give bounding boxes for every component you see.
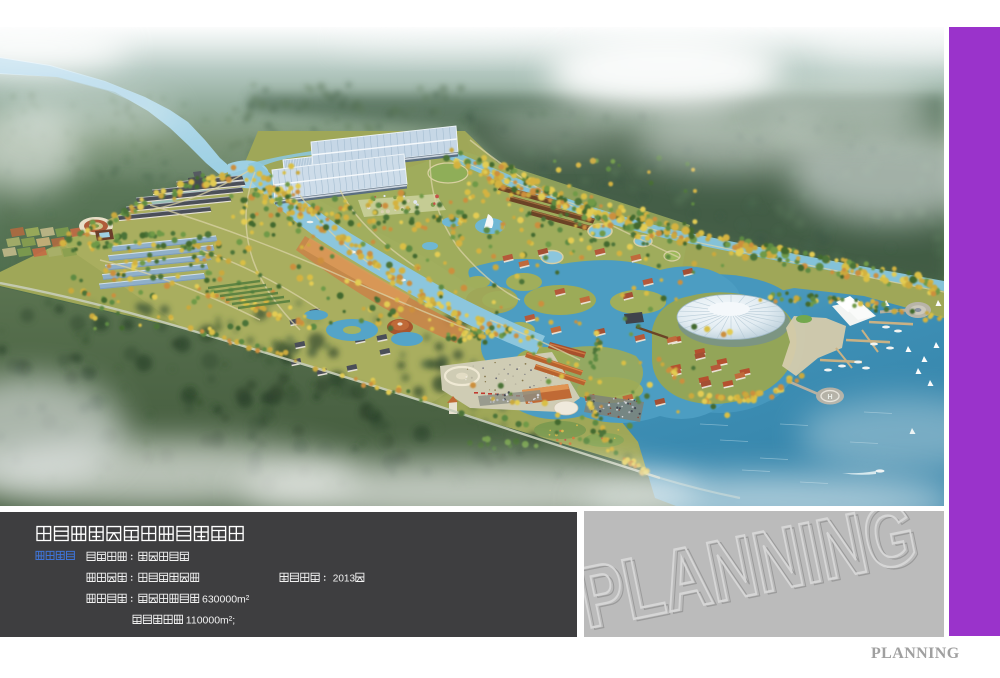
svg-text:630000m²: 630000m²	[202, 594, 250, 606]
svg-text:110000m²;: 110000m²;	[186, 615, 235, 627]
svg-text:2013: 2013	[333, 574, 356, 585]
svg-text:H: H	[827, 394, 832, 401]
svg-text:PLANNING: PLANNING	[584, 511, 924, 637]
